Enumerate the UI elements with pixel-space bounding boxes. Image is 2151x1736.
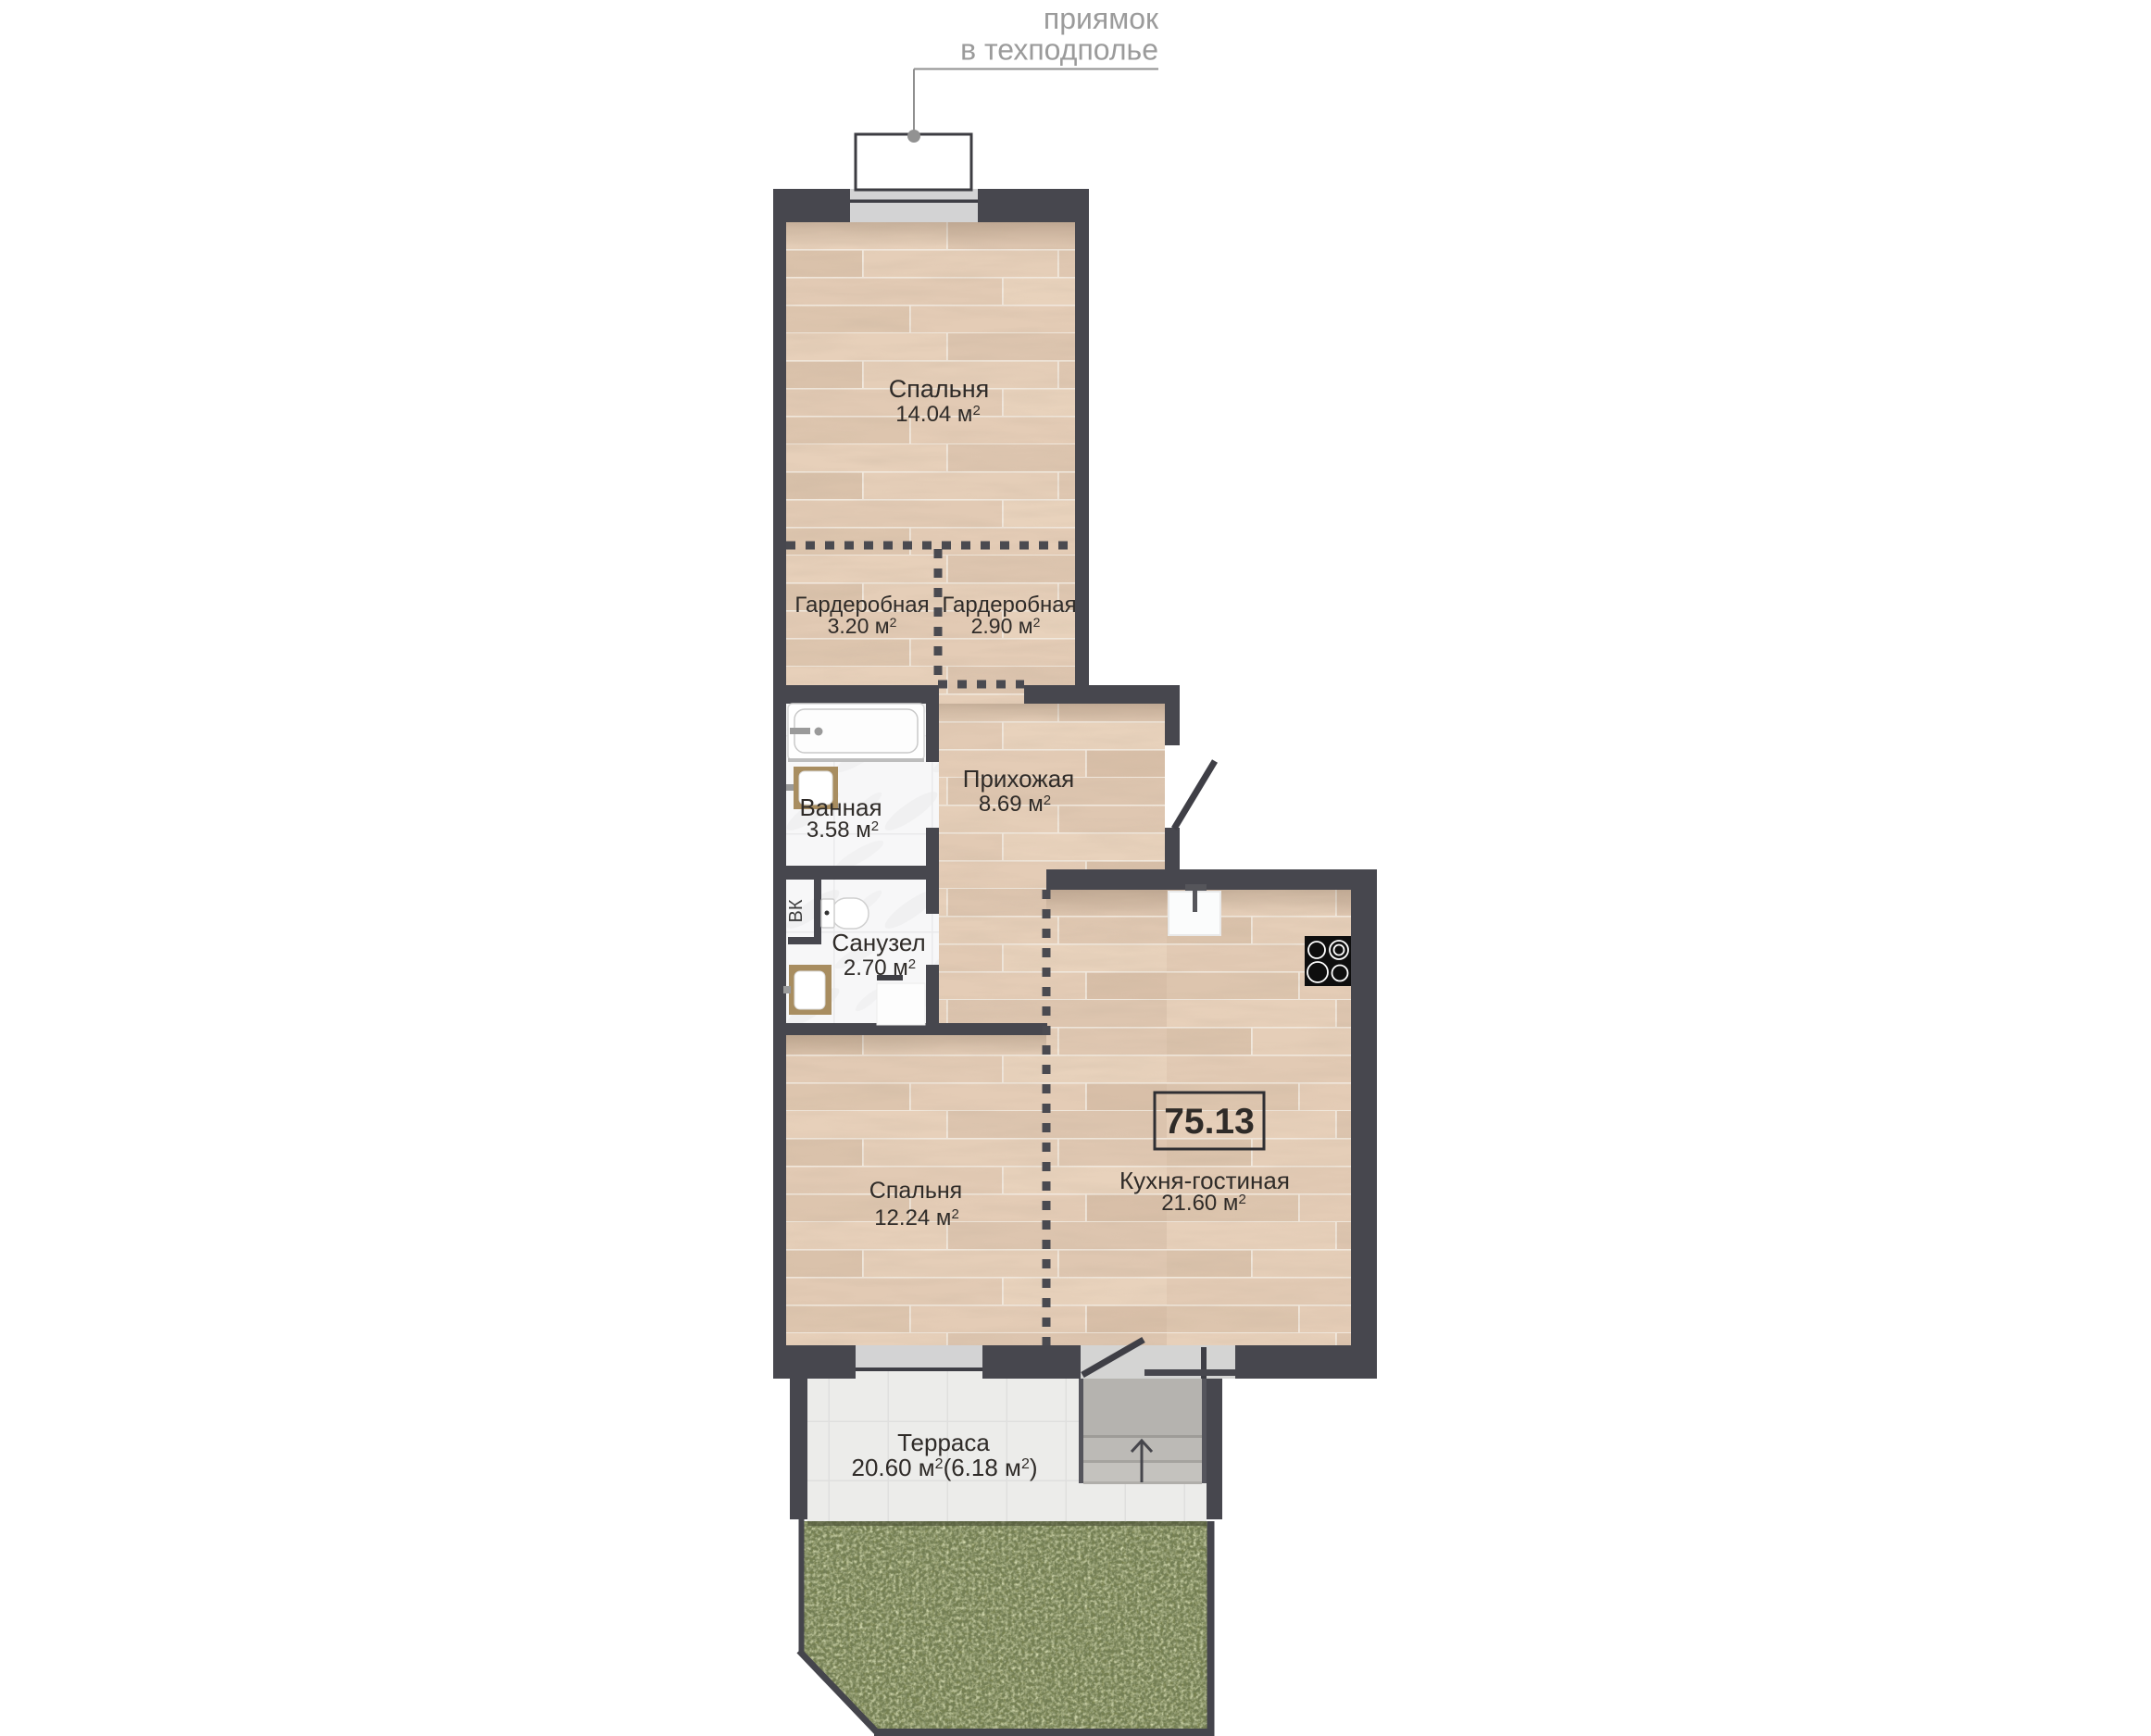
svg-text:14.04 м2: 14.04 м2 [895, 402, 981, 427]
svg-text:2.70 м2: 2.70 м2 [844, 955, 916, 980]
svg-text:20.60 м2(6.18 м2): 20.60 м2(6.18 м2) [851, 1454, 1037, 1481]
svg-text:Прихожая: Прихожая [963, 765, 1074, 793]
svg-text:в техподполье: в техподполье [960, 33, 1158, 67]
svg-text:Спальня: Спальня [869, 1178, 962, 1204]
svg-text:Санузел: Санузел [832, 929, 925, 956]
svg-text:75.13: 75.13 [1164, 1102, 1255, 1142]
svg-text:8.69 м2: 8.69 м2 [979, 792, 1051, 817]
svg-text:12.24 м2: 12.24 м2 [874, 1205, 959, 1230]
svg-text:Спальня: Спальня [889, 375, 990, 403]
svg-text:3.20 м2: 3.20 м2 [828, 614, 897, 638]
svg-text:приямок: приямок [1044, 2, 1159, 35]
svg-text:3.58 м2: 3.58 м2 [807, 818, 879, 843]
svg-text:21.60 м2: 21.60 м2 [1161, 1191, 1246, 1216]
svg-text:2.90 м2: 2.90 м2 [971, 614, 1041, 638]
svg-text:ВК: ВК [786, 899, 807, 922]
svg-text:Терраса: Терраса [897, 1429, 990, 1456]
